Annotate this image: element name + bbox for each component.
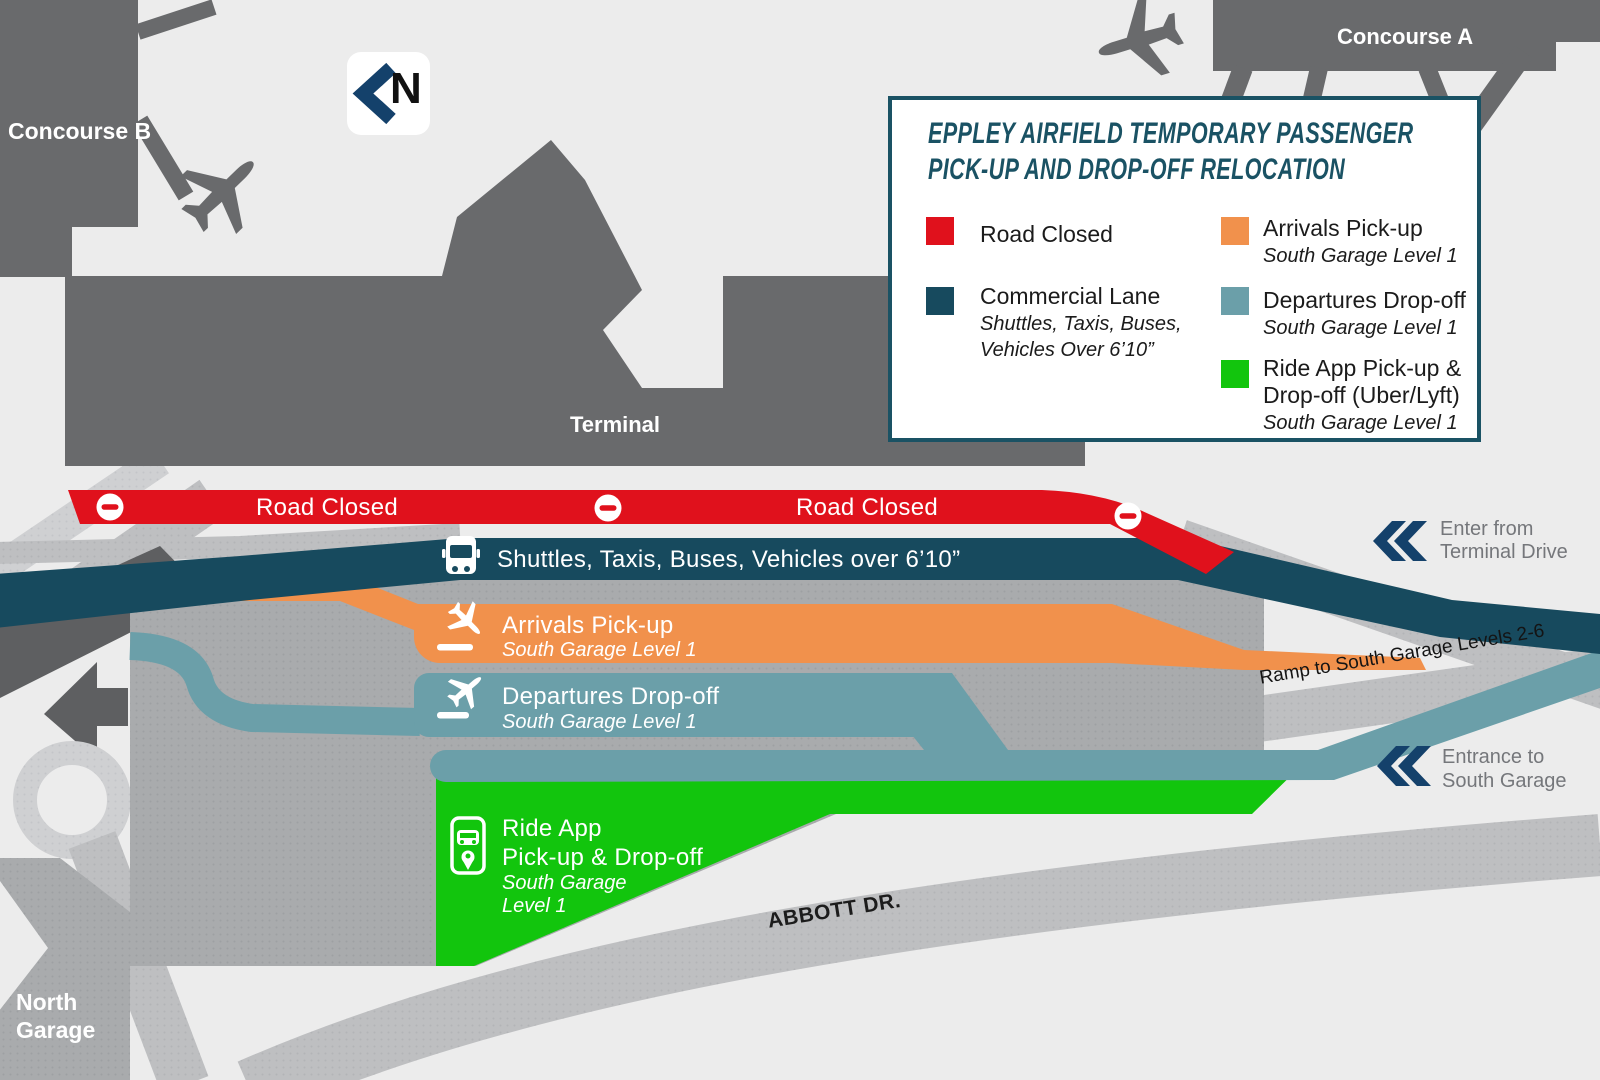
legend-label-ride-app-2: Drop-off (Uber/Lyft)	[1263, 382, 1460, 409]
bus-icon	[442, 536, 480, 574]
departures-subtitle: South Garage Level 1	[502, 711, 697, 734]
legend-swatch-ride-app	[1221, 360, 1249, 388]
no-entry-icon	[97, 494, 124, 521]
legend-sub-commercial-1: Shuttles, Taxis, Buses,	[980, 311, 1182, 337]
legend-sub-arrivals: South Garage Level 1	[1263, 243, 1458, 269]
ride-app-line4: Level 1	[502, 895, 567, 918]
legend-sub-commercial-2: Vehicles Over 6’10”	[980, 337, 1154, 363]
road-closed-label-2: Road Closed	[787, 494, 947, 522]
legend-swatch-road-closed	[926, 217, 954, 245]
legend-label-commercial: Commercial Lane	[980, 283, 1160, 310]
commercial-lane-label: Shuttles, Taxis, Buses, Vehicles over 6’…	[497, 546, 960, 574]
terminal-label: Terminal	[555, 412, 675, 438]
ride-app-line1: Ride App	[502, 815, 602, 843]
concourse-b-label: Concourse B	[8, 118, 151, 145]
legend-panel: EPPLEY AIRFIELD TEMPORARY PASSENGER PICK…	[888, 96, 1481, 442]
legend-sub-ride-app: South Garage Level 1	[1263, 410, 1458, 436]
legend-swatch-arrivals	[1221, 217, 1249, 245]
no-entry-icon	[1115, 503, 1142, 530]
north-garage-label: North Garage	[16, 988, 95, 1044]
concourse-a-label: Concourse A	[1337, 24, 1473, 50]
legend-swatch-departures	[1221, 287, 1249, 315]
legend-title-line2: PICK-UP AND DROP-OFF RELOCATION	[928, 152, 1413, 188]
north-garage-line1: North	[16, 988, 95, 1016]
enter-from-line2: Terminal Drive	[1440, 541, 1568, 564]
legend-title-line1: EPPLEY AIRFIELD TEMPORARY PASSENGER	[928, 116, 1413, 152]
road-closed-label-1: Road Closed	[247, 494, 407, 522]
legend-title: EPPLEY AIRFIELD TEMPORARY PASSENGER PICK…	[928, 116, 1413, 188]
entrance-line2: South Garage	[1442, 770, 1567, 793]
legend-label-departures: Departures Drop-off	[1263, 287, 1466, 314]
departures-title: Departures Drop-off	[502, 683, 719, 711]
legend-label-road-closed: Road Closed	[980, 221, 1113, 248]
north-label: N	[390, 64, 422, 114]
airport-map: N Concourse B Concourse A Terminal North…	[0, 0, 1600, 1080]
north-garage-line2: Garage	[16, 1016, 95, 1044]
ride-app-line3: South Garage	[502, 872, 627, 895]
ride-app-line2: Pick-up & Drop-off	[502, 844, 703, 872]
enter-from-line1: Enter from	[1440, 518, 1533, 541]
legend-swatch-commercial	[926, 287, 954, 315]
no-entry-icon	[595, 495, 622, 522]
arrivals-subtitle: South Garage Level 1	[502, 639, 697, 662]
arrivals-title: Arrivals Pick-up	[502, 612, 674, 640]
legend-label-arrivals: Arrivals Pick-up	[1263, 215, 1423, 242]
legend-label-ride-app-1: Ride App Pick-up &	[1263, 355, 1461, 382]
entrance-line1: Entrance to	[1442, 746, 1544, 769]
legend-sub-departures: South Garage Level 1	[1263, 315, 1458, 341]
